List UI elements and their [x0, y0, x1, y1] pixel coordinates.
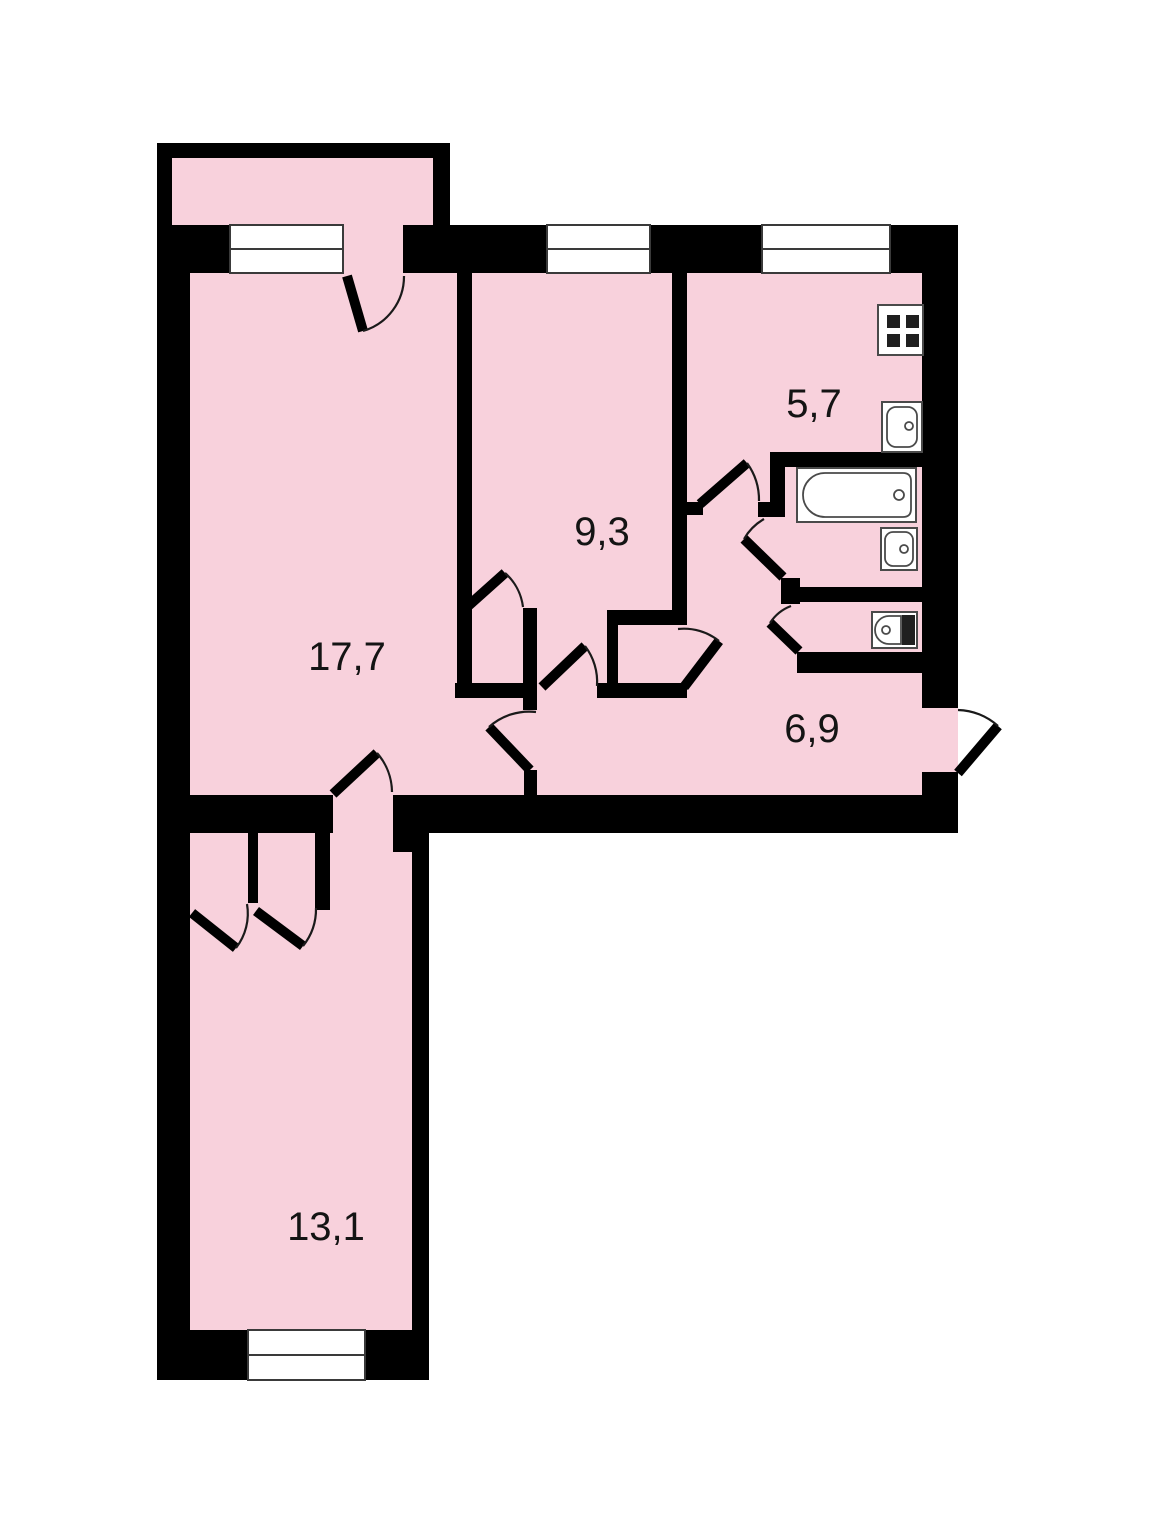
- washbasin-icon: [881, 528, 917, 570]
- door-entrance: [958, 710, 998, 773]
- wall-segment: [672, 273, 687, 625]
- floor-areas: [172, 158, 958, 1330]
- wall-segment: [457, 273, 472, 698]
- wall-segment: [597, 683, 687, 698]
- wall-segment: [157, 158, 172, 225]
- room-label-living-room: 17,7: [308, 635, 386, 679]
- window: [547, 225, 650, 273]
- stove-icon: [878, 305, 923, 355]
- room-label-hallway: 6,9: [784, 707, 840, 751]
- wall-segment: [393, 833, 412, 852]
- room-label-second-bedroom: 13,1: [287, 1205, 365, 1249]
- floor-entrance-gap: [922, 708, 958, 772]
- wall-segment: [403, 225, 547, 273]
- wall-segment: [770, 452, 922, 467]
- window: [762, 225, 890, 273]
- wall-segment: [433, 158, 450, 225]
- bathtub-icon: [797, 468, 916, 522]
- floor-lower-wing: [190, 833, 412, 1330]
- wall-segment: [365, 1330, 429, 1380]
- wall-segment: [922, 273, 958, 708]
- floor-balcony: [172, 158, 433, 225]
- floor-plan-svg: 17,7 9,3 5,7 6,9 13,1: [0, 0, 1170, 1516]
- toilet-icon: [872, 612, 917, 648]
- window: [230, 225, 343, 273]
- wall-segment: [524, 770, 537, 795]
- floor-balcony-door-gap: [343, 225, 403, 273]
- room-label-kitchen: 5,7: [786, 382, 842, 426]
- wall-segment: [157, 143, 450, 158]
- wall-segment: [770, 452, 785, 503]
- wall-segment: [315, 833, 330, 910]
- room-label-bedroom: 9,3: [574, 510, 630, 554]
- floor-corridor-gap: [333, 795, 393, 833]
- wall-segment: [393, 795, 958, 833]
- window: [248, 1330, 365, 1380]
- wall-segment: [455, 683, 537, 698]
- wall-segment: [650, 225, 762, 273]
- wall-segment: [412, 833, 429, 1380]
- wall-segment: [797, 652, 922, 673]
- wall-segment: [248, 833, 258, 903]
- floor-plan-page: 17,7 9,3 5,7 6,9 13,1: [0, 0, 1170, 1516]
- kitchen-sink-icon: [882, 402, 922, 452]
- wall-segment: [890, 225, 958, 273]
- wall-segment: [790, 587, 922, 602]
- wall-segment: [157, 1330, 248, 1380]
- wall-segment: [758, 502, 785, 517]
- wall-segment: [157, 795, 333, 833]
